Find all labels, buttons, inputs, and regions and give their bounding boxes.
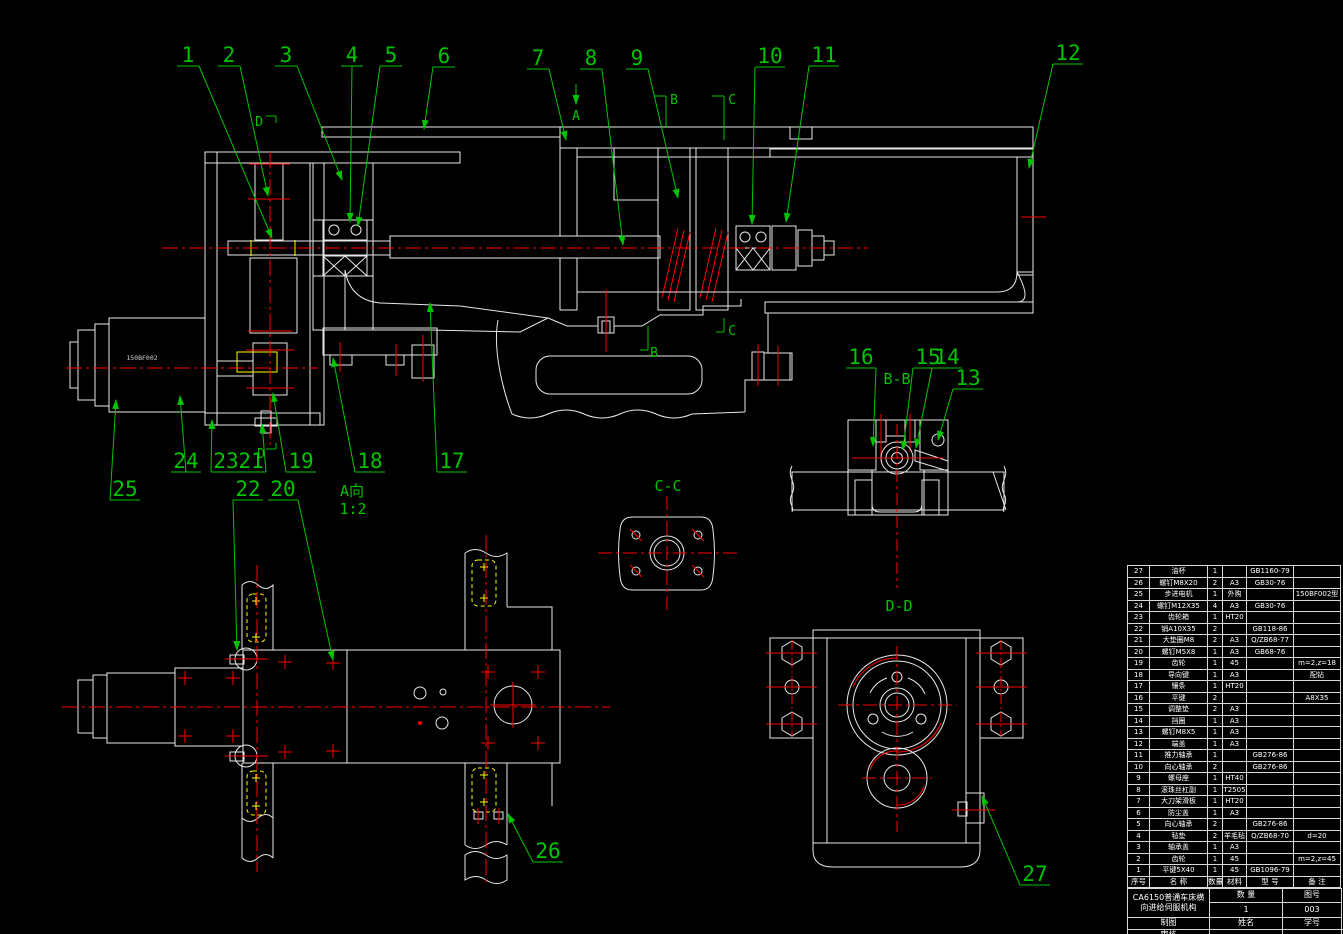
bom-cell: T2505	[1223, 784, 1247, 796]
bom-cell: 螺母座	[1150, 773, 1208, 785]
section-letter: D	[255, 115, 263, 130]
name-label: 姓名	[1210, 918, 1283, 930]
bom-cell: 1	[1208, 727, 1223, 739]
bom-cell: A3	[1223, 738, 1247, 750]
bom-cell: 1	[1208, 658, 1223, 670]
gearbox-top-wall	[205, 152, 460, 163]
bom-cell: 19	[1128, 658, 1150, 670]
bom-cell: A8X35	[1294, 692, 1341, 704]
bom-header-name: 名 称	[1150, 876, 1208, 888]
callout-number: 16	[848, 345, 873, 369]
bom-cell: 1	[1208, 646, 1223, 658]
drafter-label: 制图	[1128, 918, 1210, 930]
bom-cell	[1294, 612, 1341, 624]
bom-cell	[1247, 796, 1294, 808]
gearbox-left-wall	[205, 152, 217, 425]
callout-leader	[1029, 64, 1053, 168]
key-highlight	[237, 352, 277, 372]
bom-cell: 14	[1128, 715, 1150, 727]
bom-cell: 9	[1128, 773, 1150, 785]
callout-leader	[240, 66, 268, 196]
section-letter: C	[728, 93, 736, 108]
bom-cell: 大刀架滑板	[1150, 796, 1208, 808]
bom-cell: 3	[1128, 842, 1150, 854]
bom-cell: 1	[1208, 807, 1223, 819]
bom-cell	[1223, 761, 1247, 773]
callout-number: 22	[235, 477, 260, 501]
oil-cup-fitting	[952, 793, 995, 823]
bom-row: 16平键2A8X35	[1128, 692, 1341, 704]
bom-cell	[1247, 692, 1294, 704]
student-no-label: 学号	[1283, 918, 1342, 930]
bom-cell	[1247, 612, 1294, 624]
bom-cell: HT20	[1223, 681, 1247, 693]
bom-cell: 镶条	[1150, 681, 1208, 693]
bom-cell: HT20	[1223, 612, 1247, 624]
callout-leader	[982, 796, 1020, 885]
bom-cell: A3	[1223, 600, 1247, 612]
bom-row: 15调整垫2A3	[1128, 704, 1341, 716]
bom-cell: 端盖	[1150, 738, 1208, 750]
bom-table: 27油杯1GB1160-7926螺钉M8X202A3GB30-7625步进电机1…	[1127, 565, 1341, 888]
callout-leader	[508, 814, 533, 862]
bom-cell	[1294, 715, 1341, 727]
bom-cell	[1294, 577, 1341, 589]
bom-cell: 1	[1208, 842, 1223, 854]
dd-right-flange	[976, 638, 1027, 738]
bom-row: 27油杯1GB1160-79	[1128, 566, 1341, 578]
bom-cell: 导向键	[1150, 669, 1208, 681]
bom-cell: 2	[1208, 830, 1223, 842]
bom-cell	[1294, 773, 1341, 785]
bom-cell: 毡垫	[1150, 830, 1208, 842]
callout-number: 13	[955, 366, 980, 390]
bom-cell: 2	[1208, 761, 1223, 773]
callout-number: 23	[213, 449, 238, 473]
bom-cell: 11	[1128, 750, 1150, 762]
bom-row: 21大垫圈M82A3Q/ZB68-77	[1128, 635, 1341, 647]
bom-cell	[1247, 738, 1294, 750]
bom-cell: 25	[1128, 589, 1150, 601]
bom-cell: GB30-76	[1247, 577, 1294, 589]
bom-row: 5向心轴承2GB276-86	[1128, 819, 1341, 831]
callout-number: 20	[270, 477, 295, 501]
bom-cell: 1	[1208, 589, 1223, 601]
bom-header-no: 序号	[1128, 876, 1150, 888]
part-callouts: 1234567891011121314151617181920212223242…	[110, 41, 1083, 886]
bom-cell: 1	[1208, 773, 1223, 785]
bom-row: 17镶条1HT20	[1128, 681, 1341, 693]
dwg-no-label: 图号	[1283, 889, 1342, 903]
bom-row: 4毡垫2羊毛毡Q/ZB68-70d=20	[1128, 830, 1341, 842]
rail-bottom-right	[465, 763, 552, 884]
callout-number: 2	[223, 43, 236, 67]
bom-cell: 7	[1128, 796, 1150, 808]
bom-cell	[1294, 600, 1341, 612]
view-title-label: B-B	[883, 370, 910, 388]
bom-cell: A3	[1223, 715, 1247, 727]
bom-cell: 23	[1128, 612, 1150, 624]
bom-cell: 防尘盖	[1150, 807, 1208, 819]
bom-row: 8滚珠丝杠副1T2505	[1128, 784, 1341, 796]
view-titles: A向1:2B-BC-CD-D	[339, 370, 912, 615]
bom-cell	[1294, 635, 1341, 647]
bom-cell: 轴承盖	[1150, 842, 1208, 854]
bom-cell: 27	[1128, 566, 1150, 578]
bom-cell: 螺钉M8X20	[1150, 577, 1208, 589]
callout-number: 9	[631, 46, 644, 70]
bom-cell	[1247, 681, 1294, 693]
bom-cell: Q/ZB68-77	[1247, 635, 1294, 647]
bom-cell	[1223, 750, 1247, 762]
callout-leader	[752, 67, 755, 224]
bom-cell: 2	[1208, 577, 1223, 589]
callout-number: 1	[182, 43, 195, 67]
housing-top-plate	[560, 127, 1033, 148]
bom-cell: m=2,z=45	[1294, 853, 1341, 865]
bom-cell: 15	[1128, 704, 1150, 716]
callout-leader	[549, 69, 566, 140]
callout-number: 8	[585, 46, 598, 70]
callout-leader	[298, 500, 333, 660]
bom-cell: GB30-76	[1247, 600, 1294, 612]
bom-cell	[1294, 819, 1341, 831]
bom-cell: GB276-86	[1247, 761, 1294, 773]
bom-row: 23齿轮箱1HT20	[1128, 612, 1341, 624]
bom-row: 18导向键1A3配钻	[1128, 669, 1341, 681]
bom-cell: 1	[1208, 612, 1223, 624]
bom-header-qty: 数量	[1208, 876, 1223, 888]
callout-number: 12	[1055, 41, 1080, 65]
bom-row: 14挡圈1A3	[1128, 715, 1341, 727]
callout-leader	[273, 393, 286, 472]
bom-row: 13螺钉M8X51A3	[1128, 727, 1341, 739]
bom-cell	[1223, 566, 1247, 578]
a-direction-view	[62, 535, 610, 886]
bom-cell: 配钻	[1294, 669, 1341, 681]
callout-number: 6	[438, 44, 451, 68]
project-title-line2: 向进给伺服机构	[1128, 903, 1209, 914]
bom-cell: GB68-76	[1247, 646, 1294, 658]
bom-cell	[1247, 669, 1294, 681]
bom-row: 20螺钉M5X81A3GB68-76	[1128, 646, 1341, 658]
bom-cell: A3	[1223, 807, 1247, 819]
bom-cell: GB276-86	[1247, 750, 1294, 762]
bom-cell: 羊毛毡	[1223, 830, 1247, 842]
view-title-label: C-C	[654, 477, 681, 495]
bom-cell: 1	[1208, 715, 1223, 727]
bom-cell: 2	[1208, 704, 1223, 716]
bom-cell: 13	[1128, 727, 1150, 739]
bom-cell: 1	[1208, 681, 1223, 693]
bom-cell: 平键	[1150, 692, 1208, 704]
project-title-line1: CA6150普通车床横	[1128, 893, 1209, 904]
callout-number: 26	[535, 839, 560, 863]
bom-row: 3轴承盖1A3	[1128, 842, 1341, 854]
qty-value: 1	[1210, 903, 1283, 918]
bom-cell: 1	[1208, 796, 1223, 808]
checker-value-cell	[1283, 929, 1342, 934]
bom-cell: 20	[1128, 646, 1150, 658]
bom-cell	[1294, 807, 1341, 819]
bom-cell: A3	[1223, 727, 1247, 739]
qty-label: 数 量	[1210, 889, 1283, 903]
view-title-label: A向	[340, 482, 364, 500]
motor-model-text: 150BF002	[126, 354, 157, 362]
bom-cell: 8	[1128, 784, 1150, 796]
bom-cell	[1294, 750, 1341, 762]
bom-cell: HT40	[1223, 773, 1247, 785]
callout-leader	[211, 420, 212, 472]
bom-header-model: 型 号	[1247, 876, 1294, 888]
bom-cell: 45	[1223, 658, 1247, 670]
bom-cell: 6	[1128, 807, 1150, 819]
bom-cell	[1223, 692, 1247, 704]
bom-cell: 挡圈	[1150, 715, 1208, 727]
callout-number: 19	[288, 449, 313, 473]
bom-header-material: 材料	[1223, 876, 1247, 888]
bom-cell: 2	[1208, 692, 1223, 704]
bom-row: 10向心轴承2GB276-86	[1128, 761, 1341, 773]
bom-cell: GB1160-79	[1247, 566, 1294, 578]
bom-cell	[1294, 796, 1341, 808]
bom-cell	[1247, 658, 1294, 670]
bom-cell: A3	[1223, 669, 1247, 681]
bom-row: 22销A10X352GB118-86	[1128, 623, 1341, 635]
bom-row: 19齿轮145m=2,z=18	[1128, 658, 1341, 670]
bom-cell	[1294, 865, 1341, 877]
bom-cell: 销A10X35	[1150, 623, 1208, 635]
section-cc-view	[598, 496, 738, 612]
view-title-label: 1:2	[339, 500, 366, 518]
bom-cell: 1	[1208, 669, 1223, 681]
bom-cell: A3	[1223, 577, 1247, 589]
bom-cell: 1	[1128, 865, 1150, 877]
bom-cell: 22	[1128, 623, 1150, 635]
rail-top-right	[465, 550, 552, 651]
bom-cell: 大垫圈M8	[1150, 635, 1208, 647]
bom-cell	[1247, 715, 1294, 727]
bom-cell: 1	[1208, 750, 1223, 762]
bom-cell: 1	[1208, 566, 1223, 578]
bom-cell: 18	[1128, 669, 1150, 681]
bom-cell: 150BF002型	[1294, 589, 1341, 601]
callout-leader	[786, 66, 809, 222]
callout-leader	[350, 66, 352, 222]
bom-row: 6防尘盖1A3	[1128, 807, 1341, 819]
callout-leader	[938, 389, 953, 440]
bom-cell	[1294, 704, 1341, 716]
dust-cover-strip	[322, 127, 560, 137]
dwg-no-value: 003	[1283, 903, 1342, 918]
bom-cell: 2	[1208, 623, 1223, 635]
bom-cell	[1247, 853, 1294, 865]
bom-cell	[1294, 738, 1341, 750]
bom-cell: d=20	[1294, 830, 1341, 842]
bom-cell	[1247, 784, 1294, 796]
bom-cell: GB1096-79	[1247, 865, 1294, 877]
callout-number: 15	[915, 345, 940, 369]
bom-row: 24螺钉M12X354A3GB30-76	[1128, 600, 1341, 612]
main-assembly-section-view	[66, 127, 1046, 445]
bom-cell	[1294, 727, 1341, 739]
section-letter: B	[670, 93, 678, 108]
bom-row: 2齿轮145m=2,z=45	[1128, 853, 1341, 865]
bom-cell: 向心轴承	[1150, 819, 1208, 831]
bom-cell: 1	[1208, 865, 1223, 877]
bom-cell	[1294, 681, 1341, 693]
bom-row: 9螺母座1HT40	[1128, 773, 1341, 785]
bom-cell: 螺钉M12X35	[1150, 600, 1208, 612]
bom-cell: 4	[1208, 600, 1223, 612]
bom-cell: GB118-86	[1247, 623, 1294, 635]
bom-cell	[1247, 589, 1294, 601]
bom-cell: 10	[1128, 761, 1150, 773]
section-letter: C	[728, 324, 736, 339]
bom-cell: HT20	[1223, 796, 1247, 808]
bom-cell: 5	[1128, 819, 1150, 831]
bom-cell	[1294, 566, 1341, 578]
bom-cell: A3	[1223, 842, 1247, 854]
callout-number: 7	[532, 46, 545, 70]
bom-cell: 螺钉M5X8	[1150, 646, 1208, 658]
bom-cell	[1294, 646, 1341, 658]
motor-seat-block	[313, 163, 373, 330]
bom-cell: 2	[1128, 853, 1150, 865]
callout-leader	[358, 66, 380, 226]
bom-cell: 螺钉M8X5	[1150, 727, 1208, 739]
callout-number: 10	[757, 44, 782, 68]
bom-cell: A3	[1223, 635, 1247, 647]
bom-row: 26螺钉M8X202A3GB30-76	[1128, 577, 1341, 589]
bom-cell: 齿轮	[1150, 658, 1208, 670]
bom-cell	[1294, 842, 1341, 854]
section-bb-view	[790, 414, 1006, 588]
stepper-motor-section	[70, 318, 205, 412]
callout-number: 11	[811, 43, 836, 67]
bom-row: 12端盖1A3	[1128, 738, 1341, 750]
bom-cell	[1223, 819, 1247, 831]
bom-cell: 步进电机	[1150, 589, 1208, 601]
bom-cell	[1294, 761, 1341, 773]
bom-cell: 45	[1223, 853, 1247, 865]
parts-table: 27油杯1GB1160-7926螺钉M8X202A3GB30-7625步进电机1…	[1127, 565, 1342, 934]
callout-number: 17	[439, 449, 464, 473]
callout-number: 3	[280, 43, 293, 67]
bom-cell: 2	[1208, 635, 1223, 647]
bom-cell: 4	[1128, 830, 1150, 842]
callout-leader	[648, 69, 678, 198]
cad-drawing-canvas[interactable]: 150BF002 1234567891011121314151617181920…	[0, 0, 1343, 934]
motor-mount-wall	[310, 163, 324, 425]
bom-cell	[1247, 807, 1294, 819]
ballscrew-shaft	[228, 236, 660, 258]
bom-cell: m=2,z=18	[1294, 658, 1341, 670]
callout-number: 25	[112, 477, 137, 501]
bom-cell: 16	[1128, 692, 1150, 704]
bom-cell: 油杯	[1150, 566, 1208, 578]
callout-leader	[333, 358, 355, 472]
bom-cell: 平键5X40	[1150, 865, 1208, 877]
bom-cell: 26	[1128, 577, 1150, 589]
bom-cell: 向心轴承	[1150, 761, 1208, 773]
callout-number: 18	[357, 449, 382, 473]
bom-cell: 外购	[1223, 589, 1247, 601]
bom-row: 7大刀架滑板1HT20	[1128, 796, 1341, 808]
bom-cell	[1294, 784, 1341, 796]
callout-number: 4	[346, 43, 359, 67]
bom-cell	[1247, 704, 1294, 716]
bom-cell: 调整垫	[1150, 704, 1208, 716]
bom-header-row: 序号 名 称 数量 材料 型 号 备 注	[1128, 876, 1341, 888]
bom-header-remark: 备 注	[1294, 876, 1341, 888]
motor-bracket	[323, 328, 437, 382]
bom-row: 1平键5X40145GB1096-79	[1128, 865, 1341, 877]
section-letter: B	[650, 346, 658, 361]
bom-cell: 齿轮箱	[1150, 612, 1208, 624]
bom-cell	[1223, 623, 1247, 635]
bom-cell: 17	[1128, 681, 1150, 693]
callout-number: 5	[385, 43, 398, 67]
bom-cell: A3	[1223, 646, 1247, 658]
bom-cell: 1	[1208, 738, 1223, 750]
bom-cell: 滚珠丝杠副	[1150, 784, 1208, 796]
title-block: CA6150普通车床横 向进给伺服机构 数 量 图号 1 003 制图 姓名 学…	[1127, 888, 1342, 934]
section-letter: A	[572, 109, 580, 124]
bom-cell: 45	[1223, 865, 1247, 877]
bom-row: 11推力轴承1GB276-86	[1128, 750, 1341, 762]
callout-number: 27	[1022, 862, 1047, 886]
section-letter: D	[257, 447, 265, 462]
bom-cell: 齿轮	[1150, 853, 1208, 865]
ballnut-housing	[614, 148, 728, 310]
bom-cell	[1247, 727, 1294, 739]
bom-cell	[1247, 773, 1294, 785]
view-title-label: D-D	[885, 597, 912, 615]
bom-cell: 1	[1208, 853, 1223, 865]
bom-row: 25步进电机1外购150BF002型	[1128, 589, 1341, 601]
bom-cell: Q/ZB68-70	[1247, 830, 1294, 842]
checker-name-cell	[1210, 929, 1283, 934]
callout-leader	[233, 500, 237, 650]
bom-cell	[1247, 842, 1294, 854]
bom-cell: A3	[1223, 704, 1247, 716]
project-title: CA6150普通车床横 向进给伺服机构	[1128, 889, 1210, 918]
bom-cell: 21	[1128, 635, 1150, 647]
bom-cell: 24	[1128, 600, 1150, 612]
bom-cell: 1	[1208, 784, 1223, 796]
bom-cell: GB276-86	[1247, 819, 1294, 831]
bom-cell: 2	[1208, 819, 1223, 831]
checker-label: 审核	[1128, 929, 1210, 934]
callout-leader	[916, 368, 932, 448]
callout-leader	[424, 67, 433, 129]
bom-cell	[1294, 623, 1341, 635]
bom-cell: 推力轴承	[1150, 750, 1208, 762]
bom-cell: 12	[1128, 738, 1150, 750]
section-dd-view	[766, 630, 1027, 867]
dd-left-flange	[766, 638, 817, 738]
